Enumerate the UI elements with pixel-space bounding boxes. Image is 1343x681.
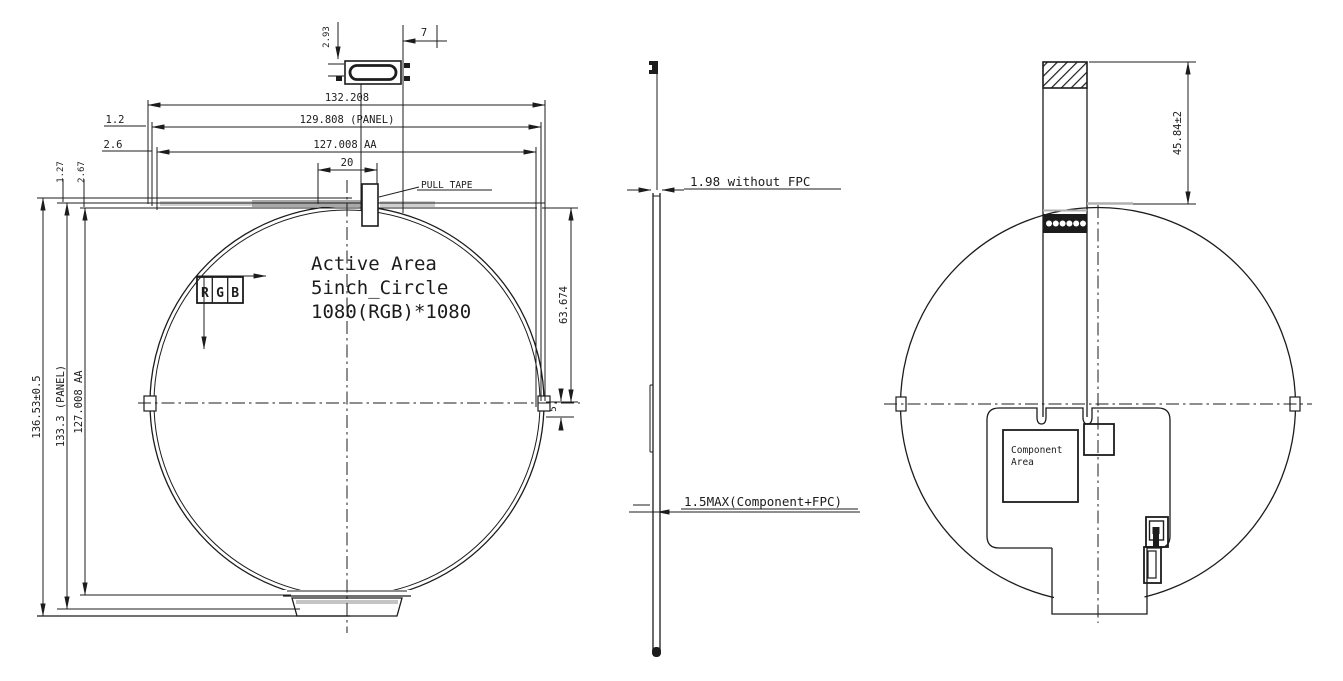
component-area-label-2: Area (1011, 457, 1034, 468)
dim-overall-height: 136.53±0.5 (31, 375, 43, 438)
side-panel-profile (652, 193, 661, 657)
dim-panel-width: 129.808 (PANEL) (300, 114, 395, 126)
lcd-outline-drawing: 132.208 129.808 (PANEL) 127.008 AA 1.2 2… (0, 0, 1343, 681)
dim-panel-height: 133.3 (PANEL) (55, 365, 67, 447)
back-tab-mask (1054, 550, 1145, 614)
thickness-max-label: 1.5MAX(Component+FPC) (684, 494, 842, 509)
dim-panel-width-offset: 1.2 (106, 114, 125, 126)
side-connector-notch (649, 65, 652, 70)
dim-connector-offset: 7 (421, 27, 427, 39)
component-area-label-1: Component (1011, 445, 1062, 456)
dim-tape-width: 20 (341, 157, 354, 169)
pull-tape-label: PULL TAPE (421, 180, 473, 191)
engineering-drawing-canvas: 132.208 129.808 (PANEL) 127.008 AA 1.2 2… (0, 0, 1343, 681)
connector-pad (404, 63, 410, 68)
pull-tape (362, 184, 378, 226)
ic-box (1084, 424, 1114, 455)
dim-connector-height: 2.93 (322, 26, 332, 48)
dim-top-offset-a: 1.27 (56, 161, 66, 183)
dim-overall-width: 132.208 (325, 92, 369, 104)
dim-top-to-center: 63.674 (558, 286, 570, 324)
front-dimension-lines (37, 22, 578, 616)
side-dimension-lines (627, 189, 860, 512)
dim-center-offset: 5 (549, 406, 559, 411)
connector-pad (404, 76, 410, 81)
fpc-contact-band (1043, 214, 1087, 233)
rgb-label: RGB (201, 286, 246, 301)
back-view: 45.84±2 Component Area (884, 62, 1312, 623)
dim-aa-width: 127.008 AA (313, 139, 377, 151)
thickness-without-fpc-label: 1.98 without FPC (690, 174, 810, 189)
fpc-stiffener-hatch (1043, 62, 1087, 88)
active-area-label-3: 1080(RGB)*1080 (311, 301, 471, 323)
active-area-label-2: 5inch_Circle (311, 277, 448, 299)
front-view: 132.208 129.808 (PANEL) 127.008 AA 1.2 2… (31, 22, 580, 633)
active-area-label-1: Active Area (311, 253, 437, 275)
side-view: 1.98 without FPC 1.5MAX(Component+FPC) (627, 61, 860, 657)
dim-aa-height: 127.008 AA (73, 370, 85, 434)
dim-top-offset-b: 2.67 (77, 161, 87, 183)
connector-pad (336, 76, 342, 81)
side-panel-bottom-tip (652, 647, 661, 657)
dim-fpc-length: 45.84±2 (1172, 111, 1184, 155)
dim-aa-width-offset: 2.6 (104, 139, 123, 151)
fpc-connector (336, 61, 410, 84)
